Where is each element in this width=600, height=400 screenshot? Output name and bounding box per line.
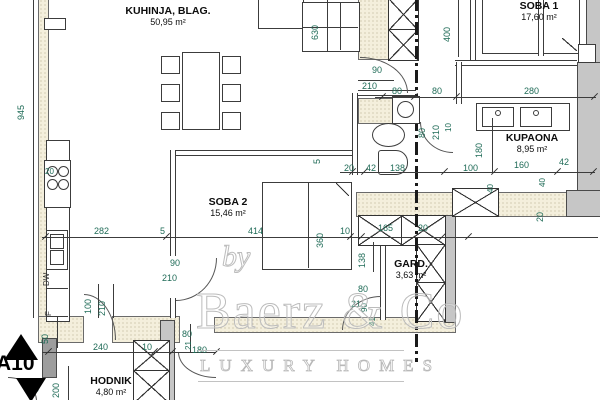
faucet-icon (533, 110, 539, 116)
dimension-label: 20 (344, 164, 354, 173)
dimension-label: 210 (432, 125, 441, 140)
bed-fold (562, 38, 577, 51)
dim-line (68, 366, 69, 400)
gard-closet-right-2 (416, 282, 446, 322)
wall-soba1-left (470, 0, 476, 60)
dimension-label: 210 (98, 301, 107, 316)
dimension-label: 240 (93, 343, 108, 352)
room-area: 8,95 m² (482, 144, 582, 155)
chair-icon (161, 112, 180, 130)
room-label: HODNIK4,80 m² (71, 375, 151, 398)
chair-icon (222, 112, 241, 130)
watermark-rule (198, 381, 404, 382)
room-area: 17,60 m² (489, 12, 589, 23)
dimension-label: 50 (41, 334, 50, 344)
room-name: SOBA 1 (489, 0, 589, 12)
floor-plan: DW F (0, 0, 600, 400)
room-label: KUPAONA8,95 m² (482, 132, 582, 155)
dimension-label: 20 (418, 224, 428, 233)
wall-soba2-left-stub (170, 298, 176, 318)
dimension-label: 360 (316, 233, 325, 248)
dimension-label: 10 (445, 123, 453, 132)
chair-icon (161, 84, 180, 102)
counter-division (46, 288, 68, 289)
room-label: SOBA 215,46 m² (178, 196, 278, 219)
dimension-label: 10 (142, 343, 152, 352)
section-line (415, 0, 418, 362)
dimension-label: 138 (358, 253, 367, 268)
dimension-label: 10 (340, 227, 350, 236)
dim-line (458, 0, 459, 57)
room-area: 50,95 m² (98, 17, 238, 28)
section-marker-label: A10 (0, 352, 35, 376)
dimension-label: 165 (378, 224, 393, 233)
dimension-label: 945 (17, 105, 26, 120)
chair-icon (161, 56, 180, 74)
room-area: 15,46 m² (178, 208, 278, 219)
chair-icon (222, 56, 241, 74)
dim-line (373, 242, 374, 272)
dimension-label: 20 (536, 212, 545, 222)
dim-line (327, 0, 328, 52)
dimension-label: 100 (84, 299, 93, 314)
dim-line (57, 316, 58, 348)
dim-line (33, 0, 34, 318)
bed-fold (336, 183, 349, 196)
dimension-label: 138 (390, 164, 405, 173)
dimension-label: 80 (358, 285, 368, 294)
burner-icon (58, 166, 69, 177)
dim-line (375, 97, 596, 98)
door-arc (176, 258, 217, 301)
room-label: SOBA 117,60 m² (489, 0, 589, 23)
room-name: KUPAONA (482, 132, 582, 144)
door-arc (178, 352, 216, 378)
room-name: SOBA 2 (178, 196, 278, 208)
dimension-label: 160 (514, 161, 529, 170)
dim-line (113, 284, 114, 318)
room-label: KUHINJA, BLAG.50,95 m² (98, 5, 238, 28)
watermark-tagline: LUXURY HOMES (200, 356, 441, 376)
room-name: HODNIK (71, 375, 151, 387)
nightstand (578, 44, 596, 63)
dimension-label: 180 (475, 143, 484, 158)
washbasin-icon (372, 123, 405, 147)
dimension-label: 20 (45, 168, 54, 176)
dimension-label: 42 (559, 158, 569, 167)
dimension-label: 90 (170, 259, 180, 268)
dimension-label: 40 (487, 184, 495, 193)
cabinet-division (340, 2, 341, 50)
wall-segment-left-low (42, 338, 57, 378)
fridge-label: F (45, 311, 53, 316)
chair-icon (222, 84, 241, 102)
dimension-label: 80 (392, 87, 402, 96)
section-arrow-icon (16, 378, 46, 400)
dimension-label: 414 (248, 227, 263, 236)
dimension-label: 90 (361, 303, 369, 312)
dimension-label: 280 (524, 87, 539, 96)
wall-corner-right-low (566, 190, 600, 217)
dimension-label: 200 (52, 383, 61, 398)
watermark-rule (198, 350, 404, 351)
wall-soba2-top (172, 150, 356, 156)
dimension-label: 80 (418, 128, 427, 138)
cabinet (258, 0, 304, 29)
dining-table (182, 52, 220, 130)
kitchen-sink-bowl (50, 250, 64, 265)
dimension-label: 282 (94, 227, 109, 236)
faucet-icon (495, 110, 501, 116)
burner-icon (47, 179, 58, 190)
room-label: GARD.3,63 m² (381, 258, 441, 281)
dimension-label: 5 (160, 227, 165, 236)
room-name: KUHINJA, BLAG. (98, 5, 238, 17)
dimension-label: 400 (443, 27, 452, 42)
bed-division (308, 182, 309, 268)
dimension-label: 40 (539, 178, 547, 187)
wall-pier-wc (358, 98, 393, 124)
wall-kupaona-top (455, 60, 577, 66)
dimension-label: 630 (311, 25, 320, 40)
wall-shaft-top (358, 0, 390, 60)
dimension-label: 80 (432, 87, 442, 96)
washing-machine-door (397, 101, 414, 118)
room-area: 4,80 m² (71, 387, 151, 398)
dimension-label: 210 (162, 274, 177, 283)
dimension-label: 100 (463, 164, 478, 173)
wall-right-mid (577, 62, 600, 194)
watermark-by: by (222, 240, 250, 274)
dim-line (42, 352, 216, 353)
dimension-label: 5 (313, 159, 322, 164)
dishwasher-label: DW (43, 273, 51, 286)
dimension-label: 80 (182, 330, 192, 339)
burner-icon (58, 179, 69, 190)
wall-soba2-left (170, 150, 176, 256)
dimension-label: 90 (372, 66, 382, 75)
room-name: GARD. (381, 258, 441, 270)
room-area: 3,63 m² (381, 270, 441, 281)
dimension-label: 210 (362, 82, 377, 91)
dimension-label: 42 (366, 164, 376, 173)
wall-step (44, 18, 66, 30)
dimension-label: 41 (369, 317, 377, 326)
